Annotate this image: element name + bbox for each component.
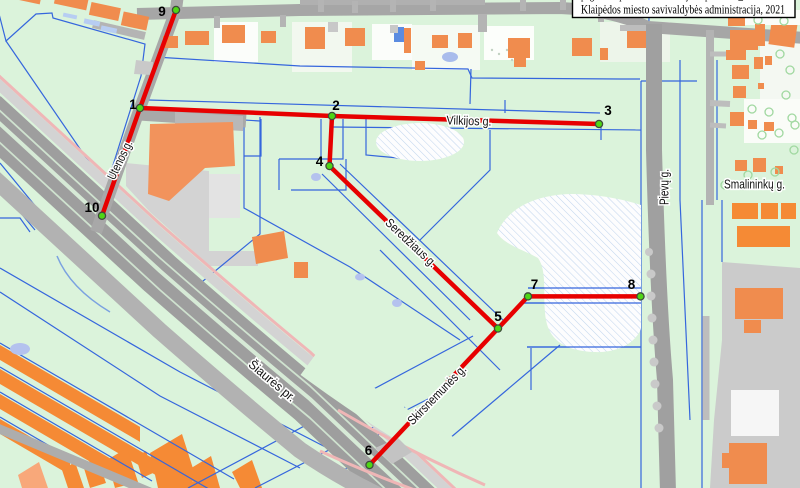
- svg-text:3: 3: [604, 103, 612, 118]
- svg-text:Smalininkų g.: Smalininkų g.: [724, 178, 785, 192]
- svg-text:6: 6: [365, 443, 373, 458]
- svg-text:Vilkijos g.: Vilkijos g.: [446, 113, 491, 128]
- svg-text:8: 8: [628, 277, 636, 292]
- svg-text:pagal Klaipėdos m. savivaldybė: pagal Klaipėdos m. savivaldybės pateiktu…: [581, 0, 779, 2]
- svg-text:2: 2: [332, 98, 340, 113]
- svg-text:1: 1: [129, 97, 137, 112]
- svg-text:5: 5: [494, 309, 502, 324]
- svg-text:Pievų g.: Pievų g.: [658, 169, 672, 205]
- svg-text:4: 4: [316, 154, 324, 169]
- svg-text:Klaipėdos miesto savivaldybės: Klaipėdos miesto savivaldybės administra…: [581, 2, 785, 17]
- svg-text:10: 10: [84, 200, 99, 215]
- svg-text:7: 7: [531, 277, 539, 292]
- svg-text:9: 9: [158, 4, 166, 19]
